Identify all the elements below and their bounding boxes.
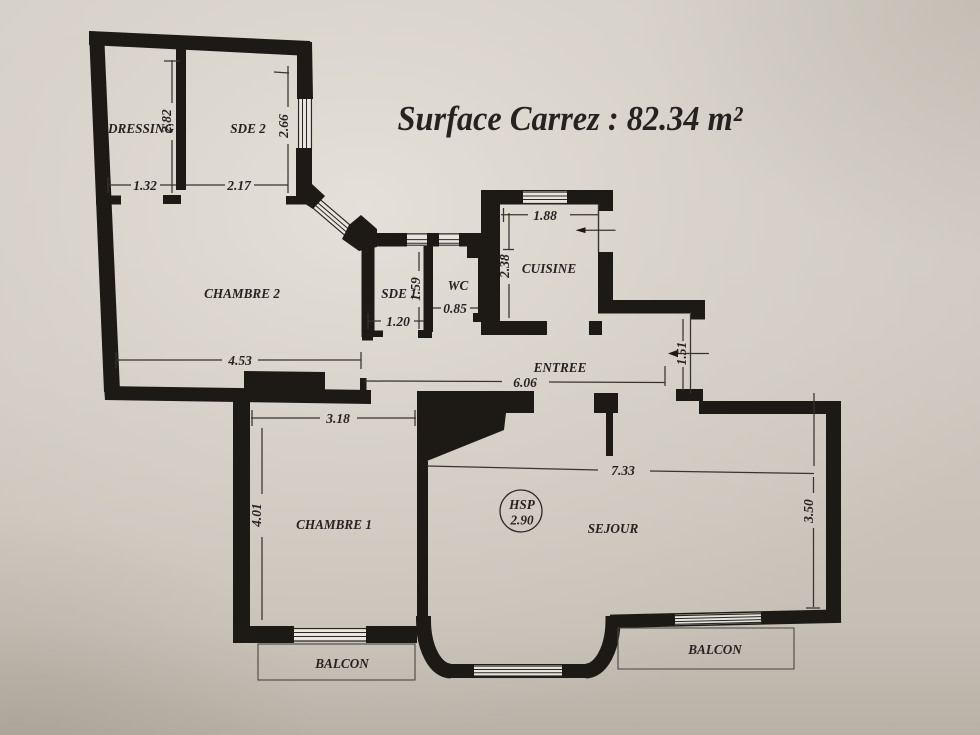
svg-text:CHAMBRE 1: CHAMBRE 1	[296, 517, 372, 532]
svg-text:4.01: 4.01	[249, 503, 264, 528]
svg-text:1.20: 1.20	[386, 314, 410, 329]
svg-text:2.66: 2.66	[276, 114, 291, 139]
svg-text:HSP: HSP	[508, 497, 536, 512]
svg-text:CHAMBRE 2: CHAMBRE 2	[204, 286, 280, 301]
svg-text:3.18: 3.18	[325, 411, 350, 426]
svg-text:SDE 2: SDE 2	[230, 121, 266, 136]
svg-text:7.33: 7.33	[611, 463, 635, 478]
svg-text:2.90: 2.90	[509, 513, 533, 528]
svg-text:2.82: 2.82	[159, 109, 174, 134]
svg-text:WC: WC	[448, 278, 469, 293]
svg-text:1.59: 1.59	[408, 277, 423, 301]
svg-text:BALCON: BALCON	[687, 642, 742, 657]
svg-text:2.17: 2.17	[226, 178, 252, 193]
svg-text:2.38: 2.38	[497, 254, 512, 279]
svg-text:3.50: 3.50	[801, 499, 816, 524]
svg-text:CUISINE: CUISINE	[522, 261, 576, 276]
svg-text:BALCON: BALCON	[314, 656, 369, 671]
svg-text:1.32: 1.32	[133, 178, 157, 193]
svg-text:4.53: 4.53	[227, 353, 252, 368]
svg-text:1.88: 1.88	[533, 208, 557, 223]
svg-text:6.06: 6.06	[513, 375, 537, 390]
svg-text:0.85: 0.85	[443, 301, 467, 316]
svg-text:SEJOUR: SEJOUR	[588, 521, 639, 536]
svg-text:ENTREE: ENTREE	[533, 360, 587, 375]
svg-text:Surface Carrez : 82.34 m²: Surface Carrez : 82.34 m²	[398, 99, 744, 138]
svg-text:1.51: 1.51	[674, 342, 689, 366]
